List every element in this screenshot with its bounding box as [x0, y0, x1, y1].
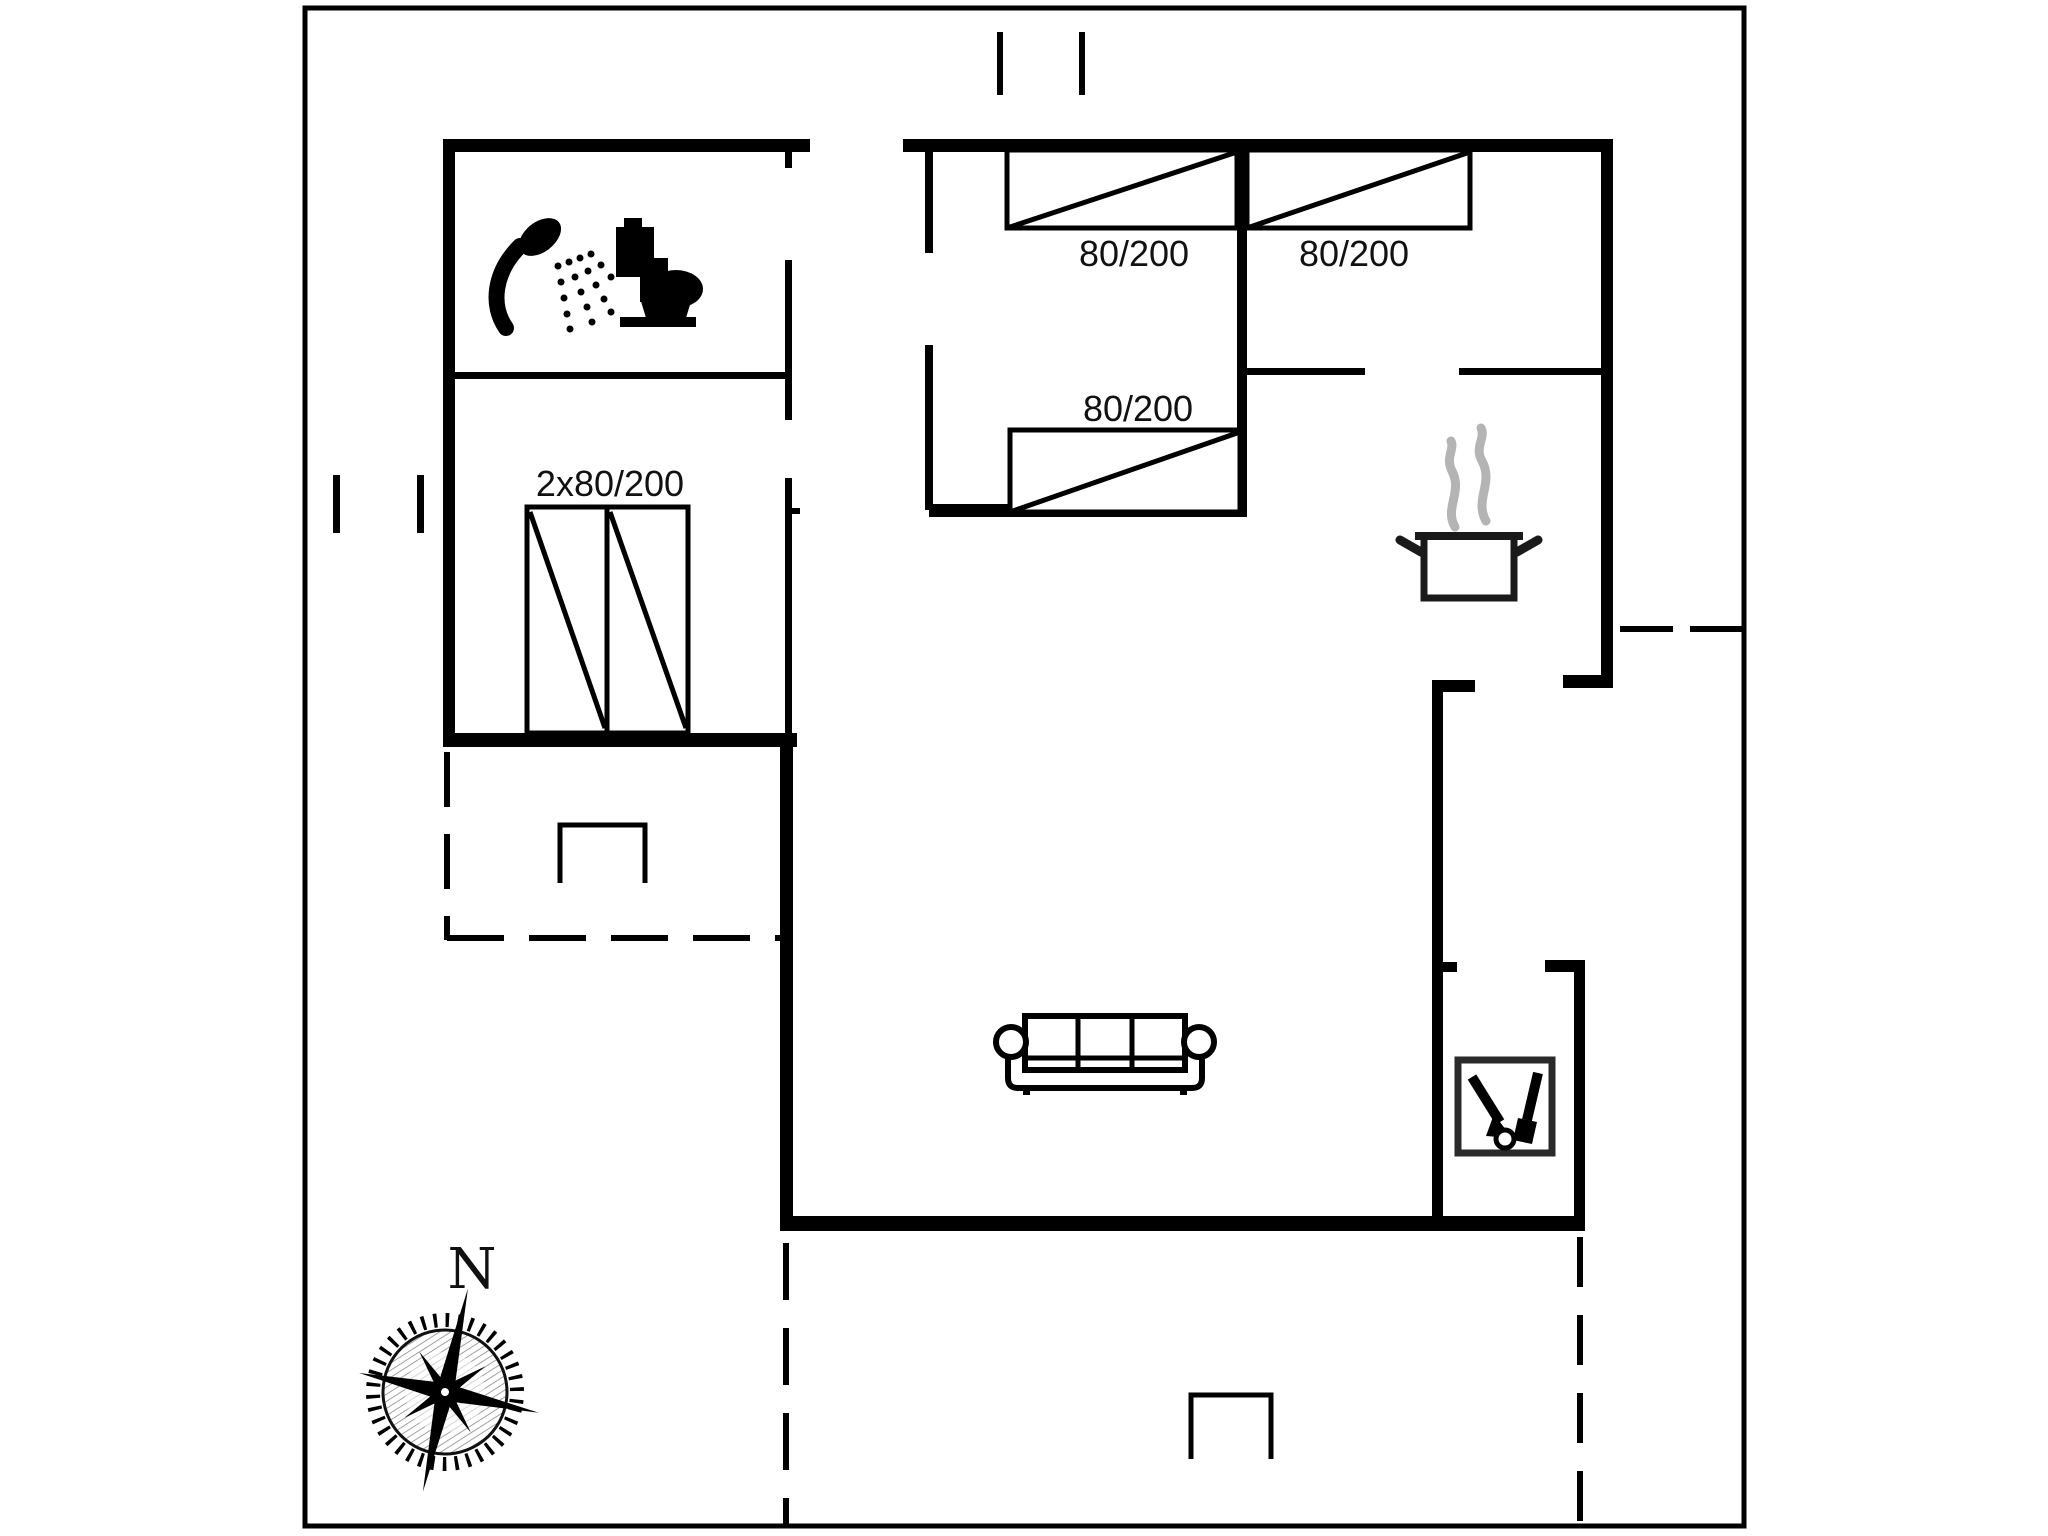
compass-rose-icon: N: [337, 1237, 562, 1512]
bed-label-middle-top: 80/200: [1079, 233, 1189, 274]
entrance-steps: [560, 825, 1271, 1459]
window-tick-left-2: [417, 475, 424, 533]
wall-east: [1601, 139, 1613, 688]
wall-utility-west: [1432, 680, 1443, 1225]
bed-label-middle-bottom: 80/200: [1083, 388, 1193, 429]
wall-top-left: [443, 139, 810, 152]
cooking-pot-icon: [1400, 536, 1538, 598]
step-mark-west: [560, 825, 645, 883]
wall-bathroom-south: [455, 372, 792, 379]
plot-border: [305, 8, 1744, 1526]
kitchen-icon-group: [1400, 428, 1538, 598]
window-tick-right-1: [1620, 626, 1673, 632]
wall-utility-east: [1574, 972, 1585, 1228]
bathroom-icons: [497, 210, 703, 332]
wood-stove-icon: [1458, 1060, 1552, 1153]
steam-icon: [1449, 428, 1486, 527]
wall-hall-door-tick: [785, 508, 800, 514]
compass-north-label: N: [448, 1237, 497, 1302]
wall-hall-west-a: [785, 260, 792, 420]
bed-middle-top: [1007, 150, 1237, 228]
wall-hall-west-stub: [785, 152, 792, 168]
wall-living-south: [780, 1216, 1585, 1231]
wall-west: [443, 139, 455, 747]
step-mark-south: [1191, 1395, 1271, 1459]
bed-label-left-bunk: 2x80/200: [536, 463, 684, 504]
terrace-dashed-outline: [447, 752, 1580, 1526]
wall-utility-west-stub: [1432, 680, 1475, 692]
wall-hall-east-a: [925, 152, 933, 253]
wall-utility-door-tick: [1443, 962, 1457, 972]
wall-east-stub: [1563, 675, 1613, 688]
window-tick-left-1: [333, 475, 340, 533]
wall-hall-west-b: [785, 478, 792, 733]
wall-hall-east-b: [925, 345, 933, 510]
wall-bedroom-right-south-b: [1459, 368, 1605, 375]
floor-plan-page: N 80/200 80/200 80/200 2x80/200: [0, 0, 2048, 1536]
wall-utility-east-stub: [1545, 960, 1585, 972]
bed-right: [1247, 150, 1470, 228]
bunk-beds-left: [527, 507, 688, 733]
shower-icon: [497, 210, 615, 332]
window-tick-top-2: [1079, 32, 1085, 95]
bed-label-right: 80/200: [1299, 233, 1409, 274]
wall-bedroom-right-south-a: [1240, 368, 1365, 375]
shower-spray-dots: [555, 251, 615, 333]
window-tick-top-1: [997, 32, 1003, 95]
floor-plan-canvas: N 80/200 80/200 80/200 2x80/200: [0, 0, 2048, 1536]
toilet-icon: [616, 218, 703, 327]
sofa-icon: [996, 1016, 1214, 1095]
wall-living-west: [780, 747, 793, 1231]
window-tick-right-2: [1690, 626, 1743, 632]
bed-middle-bottom: [1010, 430, 1240, 512]
